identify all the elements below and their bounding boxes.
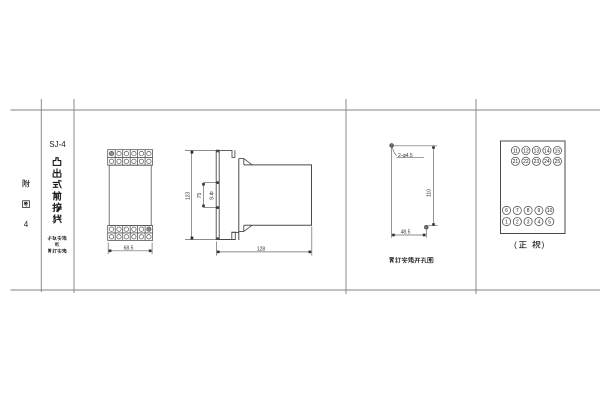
svg-text:24: 24 [544, 159, 550, 165]
svg-text:21: 21 [513, 159, 519, 165]
svg-text:48.5: 48.5 [401, 230, 411, 236]
svg-text:2-φ4.5: 2-φ4.5 [398, 153, 413, 159]
svg-text:5: 5 [548, 219, 551, 225]
svg-text:9-Φ: 9-Φ [210, 191, 216, 199]
svg-text:22: 22 [523, 159, 529, 165]
svg-text:3: 3 [527, 219, 530, 225]
svg-text:11: 11 [513, 148, 518, 154]
svg-text:12: 12 [523, 148, 529, 154]
svg-text:110: 110 [427, 189, 433, 197]
svg-text:): ) [542, 240, 545, 250]
svg-text:10: 10 [547, 208, 553, 214]
svg-text:9: 9 [538, 208, 541, 214]
svg-text:6: 6 [505, 208, 508, 214]
svg-text:13: 13 [534, 148, 540, 154]
svg-text:25: 25 [555, 159, 561, 165]
svg-text:128: 128 [257, 246, 266, 252]
svg-text:4: 4 [538, 219, 541, 225]
svg-text:23: 23 [534, 159, 540, 165]
svg-text:8: 8 [527, 208, 530, 214]
svg-text:SJ-4: SJ-4 [49, 140, 66, 149]
svg-text:7: 7 [516, 208, 519, 214]
svg-text:68.5: 68.5 [124, 246, 134, 252]
svg-text:4: 4 [24, 220, 29, 229]
svg-text:14: 14 [544, 148, 550, 154]
svg-text:(: ( [514, 240, 517, 250]
svg-text:2: 2 [516, 219, 519, 225]
svg-text:15: 15 [555, 148, 561, 154]
svg-text:123: 123 [186, 192, 192, 201]
svg-text:75: 75 [197, 193, 203, 199]
svg-text:1: 1 [505, 219, 508, 225]
